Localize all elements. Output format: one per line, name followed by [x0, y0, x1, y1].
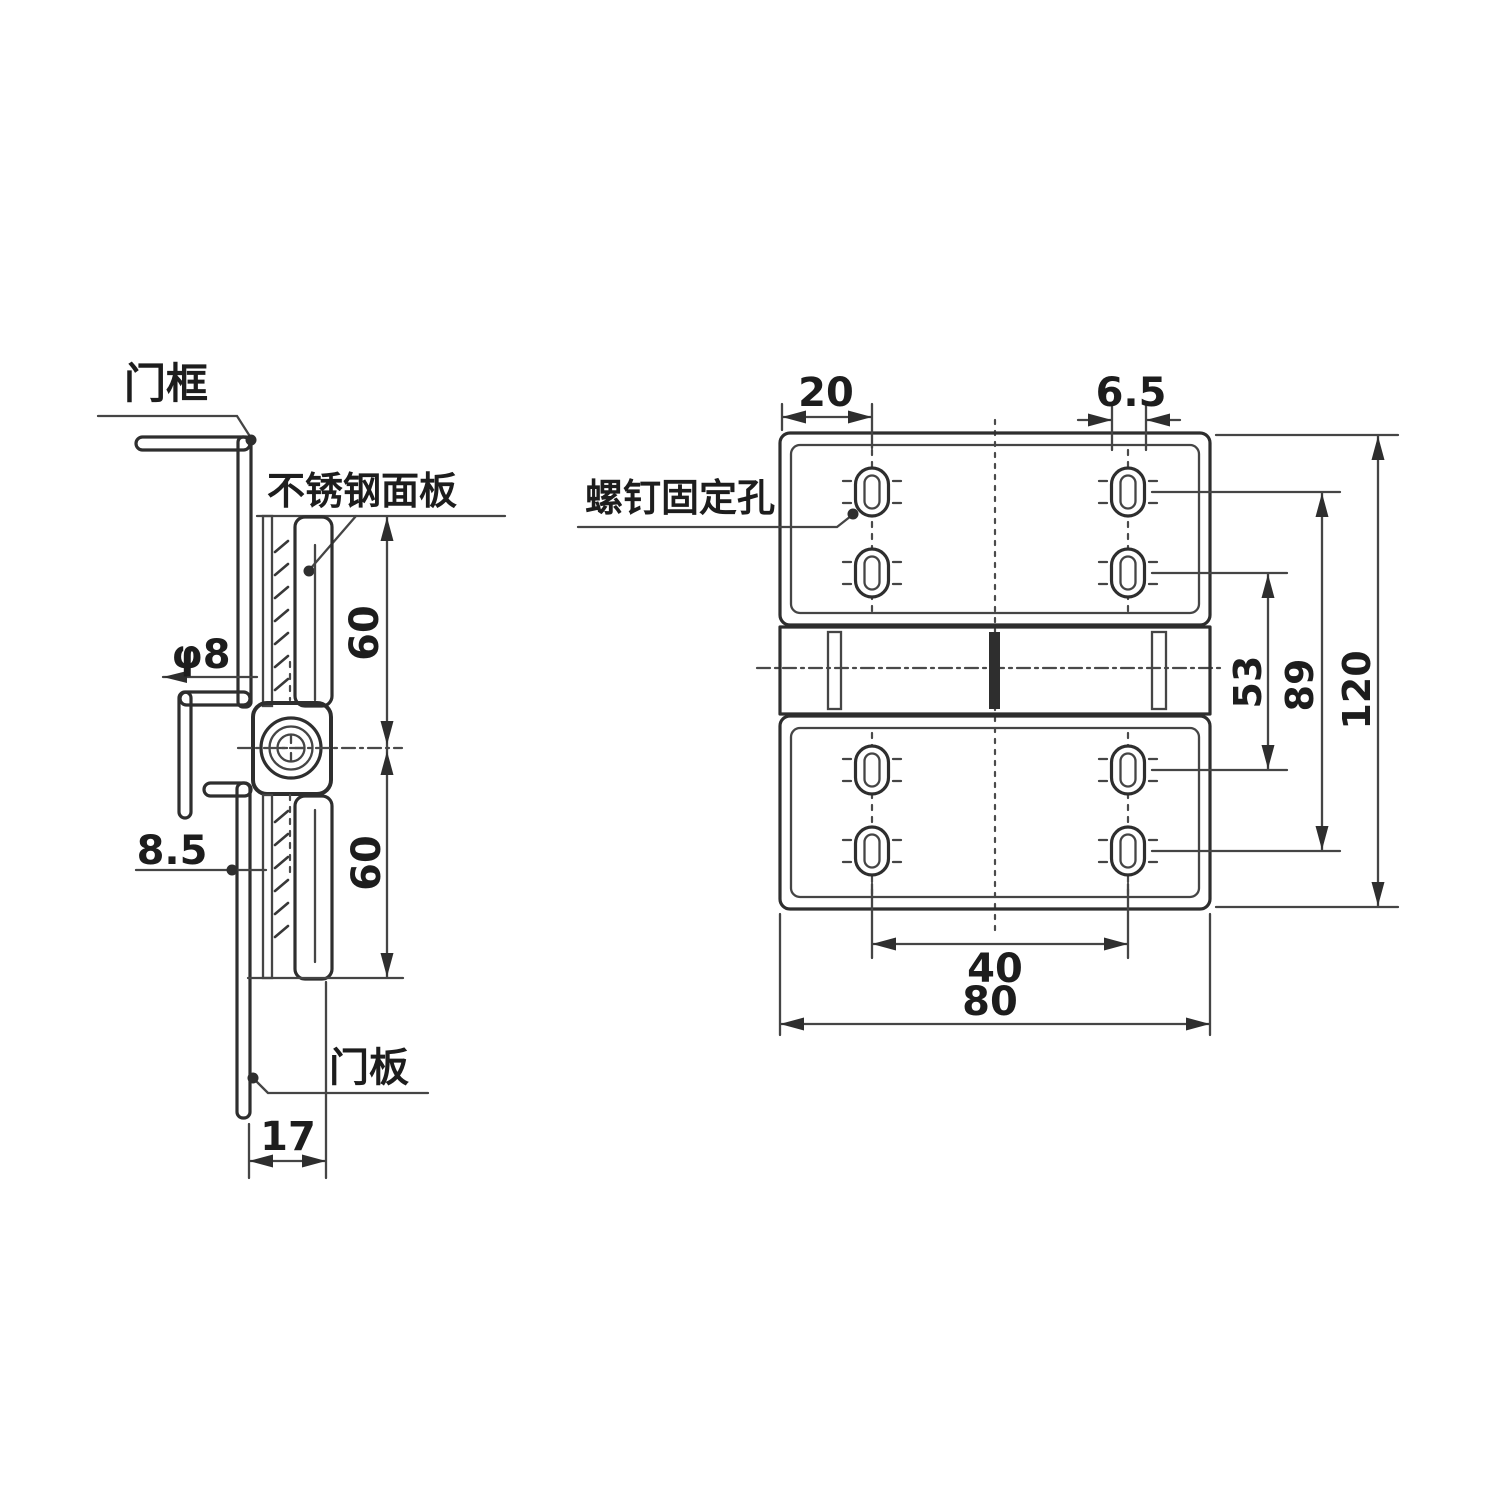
knuckle-joint-left	[828, 632, 841, 709]
leader-dot	[227, 865, 238, 876]
offset-dim: 8.5	[137, 828, 208, 874]
frame-top-flange	[136, 437, 250, 450]
bottom-plate	[780, 716, 1210, 909]
arrow-left	[780, 1018, 804, 1031]
arrow-left	[872, 938, 896, 951]
arrow-down	[381, 953, 394, 977]
arrow-up	[1262, 574, 1275, 598]
slot-hole-bottom-left-2	[843, 827, 901, 875]
slot-hole-bottom-right-1	[1099, 746, 1157, 794]
dim-20: 20	[782, 370, 872, 448]
hinge-technical-drawing: 门框 不锈钢面板	[0, 0, 1500, 1500]
panel-top-flange	[204, 783, 251, 796]
depth-dim: 17	[260, 1114, 316, 1160]
leaf-plate	[295, 517, 332, 706]
slot-width-dim: 6.5	[1096, 370, 1167, 416]
lower-height-dim: 60	[344, 835, 390, 891]
arrow-down	[1262, 745, 1275, 769]
leader-line	[98, 416, 251, 438]
door-frame-callout: 门框	[98, 359, 257, 446]
frame-web	[238, 437, 251, 707]
frame-return	[179, 692, 191, 818]
section-hatching	[275, 811, 288, 937]
door-panel-profile	[204, 783, 251, 1118]
upper-height-dim: 60	[342, 605, 388, 661]
arrow-up-mid	[381, 751, 394, 775]
front-view: 螺钉固定孔 20 6.5 120 89	[578, 370, 1398, 1035]
slot-hole-top-right-1	[1099, 468, 1157, 516]
leaf-plate	[295, 796, 332, 979]
panel-sheet	[263, 516, 272, 706]
inner-hole-span-dim: 53	[1226, 656, 1270, 709]
door-panel-callout: 门板	[248, 1045, 429, 1093]
arrow-up	[381, 517, 394, 541]
screw-hole-label: 螺钉固定孔	[585, 476, 775, 520]
knuckle-band	[780, 627, 1210, 714]
edge-to-hole-dim: 20	[798, 370, 854, 416]
panel-label: 不锈钢面板	[267, 469, 457, 513]
door-frame-profile	[136, 437, 251, 818]
arrow-down-mid	[381, 721, 394, 745]
dim-depth: 17	[249, 982, 326, 1178]
slot-hole-top-right-2	[1099, 549, 1157, 597]
plate-outline	[780, 716, 1210, 909]
leader-dot	[848, 509, 859, 520]
dim-pin-diameter: φ8	[163, 632, 257, 683]
arrow-up	[1372, 436, 1385, 460]
arrow-right	[1104, 938, 1128, 951]
dim-6-5: 6.5	[1078, 370, 1180, 450]
leader-dot	[246, 435, 257, 446]
arrow-down	[1316, 826, 1329, 850]
door-panel-label: 门板	[329, 1045, 409, 1091]
dim-40: 40	[872, 884, 1128, 992]
dim-53: 53	[1152, 573, 1287, 770]
slot-hole-bottom-right-2	[1099, 827, 1157, 875]
dim-offset: 8.5	[136, 828, 266, 876]
total-width-dim: 80	[962, 979, 1018, 1025]
top-leaf	[263, 516, 332, 706]
slot-hole-top-left-2	[843, 549, 901, 597]
panel-sheet-web	[237, 783, 250, 1118]
door-frame-label: 门框	[124, 359, 208, 408]
screw-hole-callout: 螺钉固定孔	[578, 476, 859, 527]
panel-sheet	[263, 795, 272, 978]
bottom-leaf	[263, 795, 332, 979]
outer-hole-span-dim: 89	[1278, 659, 1322, 712]
pin-diameter-dim: φ8	[171, 632, 230, 678]
slot-hole-bottom-left-1	[843, 746, 901, 794]
arrow-down	[1372, 882, 1385, 906]
side-view: 门框 不锈钢面板	[98, 359, 505, 1178]
arrow-up	[1316, 493, 1329, 517]
arrow-right	[1186, 1018, 1210, 1031]
total-height-dim: 120	[1335, 650, 1379, 729]
leader-dot	[248, 1073, 259, 1084]
knuckle-joint-right	[1152, 632, 1166, 709]
knuckle-joint-center	[989, 632, 1000, 709]
drawing-canvas: 门框 不锈钢面板	[0, 0, 1500, 1500]
leader-dot	[304, 566, 315, 577]
section-hatching	[275, 541, 288, 690]
